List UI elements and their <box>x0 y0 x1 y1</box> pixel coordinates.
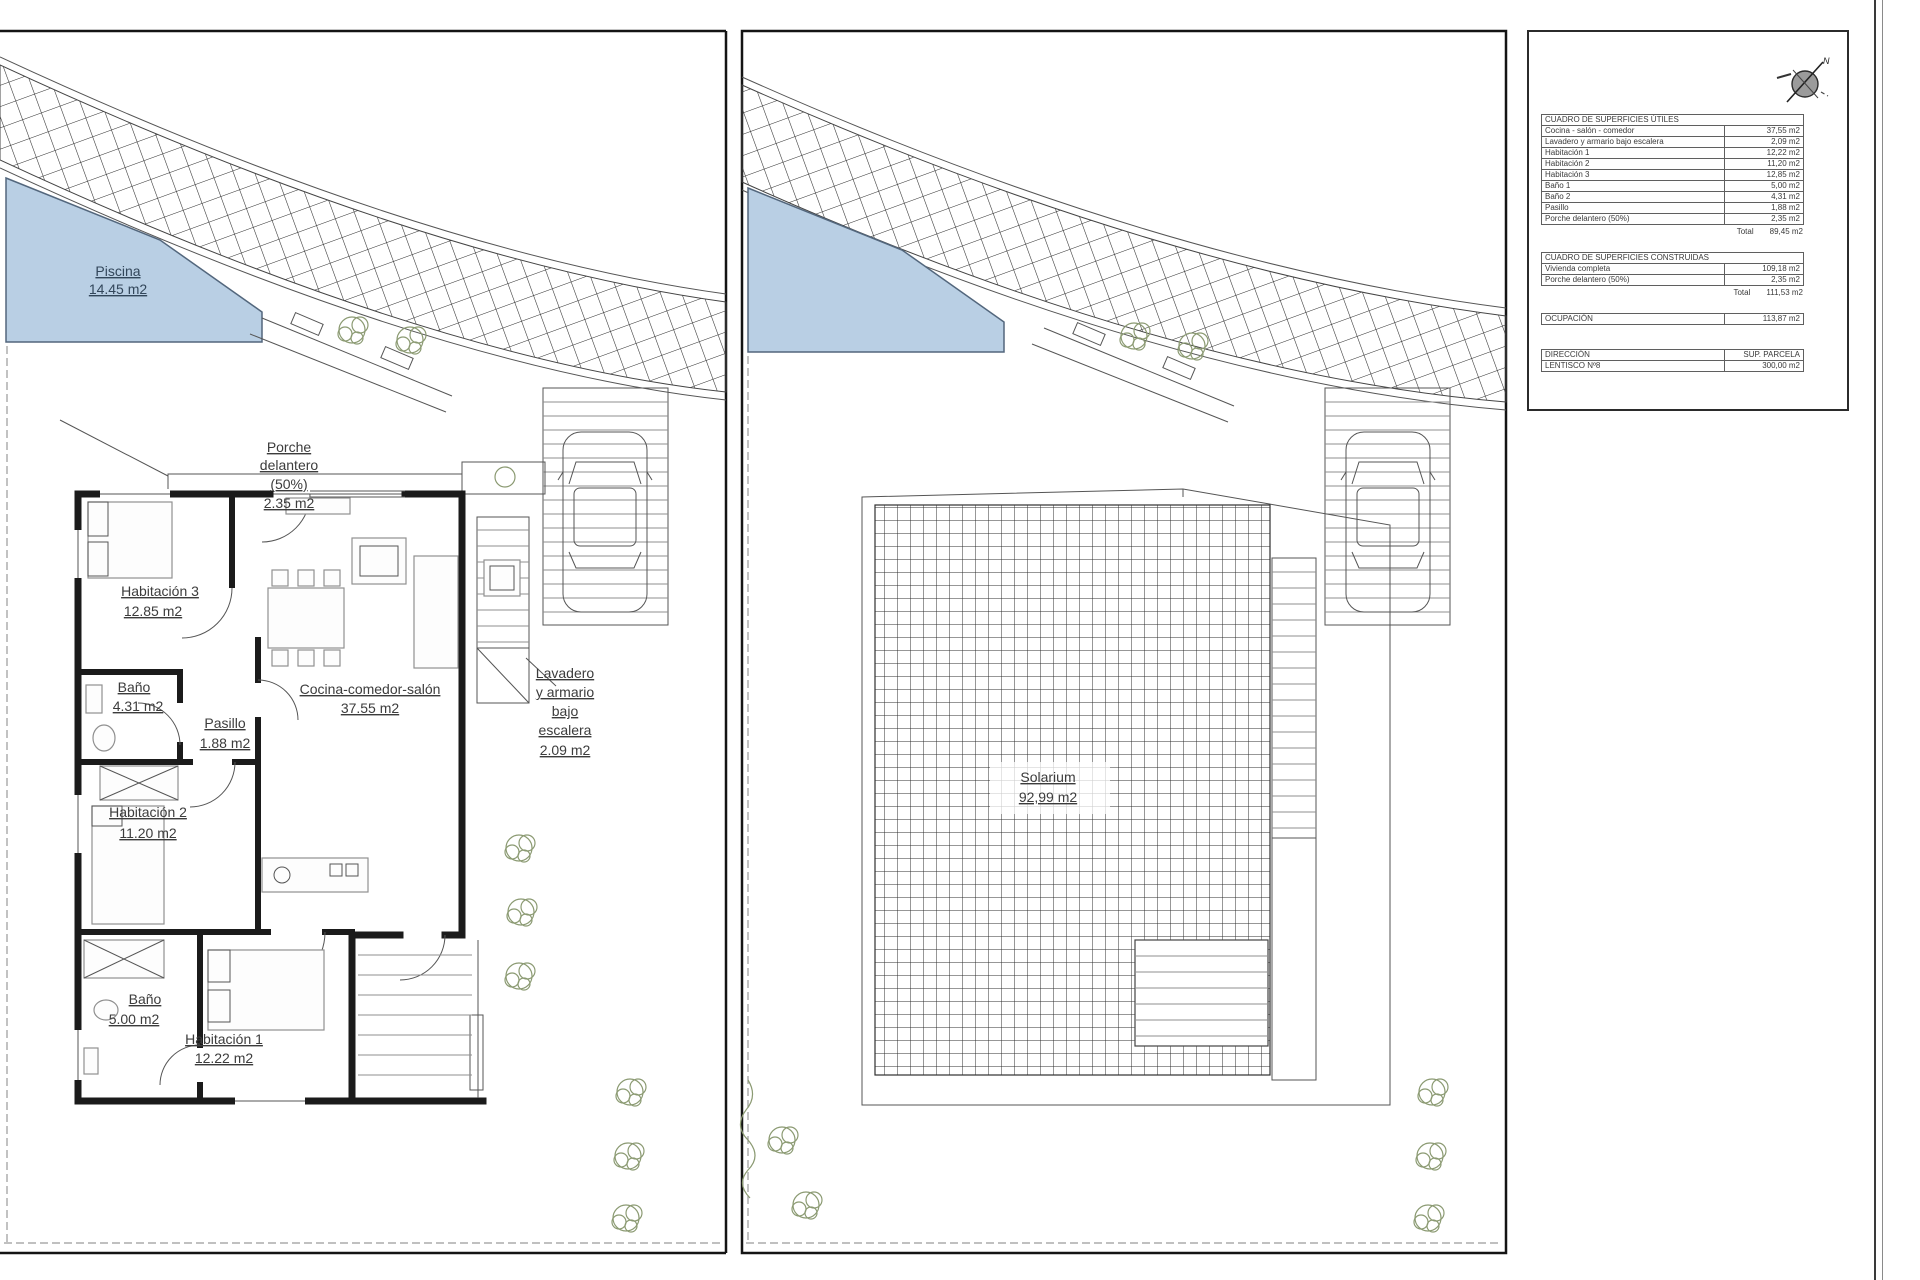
table-title: CUADRO DE SUPERFICIES CONSTRUIDAS <box>1542 253 1804 264</box>
pasillo-area: 1.88 m2 <box>200 735 251 751</box>
row-label: Habitación 2 <box>1542 159 1725 170</box>
pool-label: Piscina <box>95 263 140 279</box>
porch-label-2: delantero <box>260 457 319 473</box>
deck-steps <box>358 940 483 1098</box>
car-icon <box>1341 432 1435 612</box>
parcel-surface-header: SUP. PARCELA <box>1725 350 1804 361</box>
cocina-area: 37.55 m2 <box>341 700 400 716</box>
lavadero-label-4: escalera <box>539 722 592 738</box>
total-value: 111,53 m2 <box>1766 288 1803 297</box>
garden-plants <box>338 317 646 1232</box>
total-label: Total <box>1737 227 1754 236</box>
parking-area <box>1325 388 1450 625</box>
row-label: Baño 2 <box>1542 192 1725 203</box>
row-label: Pasillo <box>1542 203 1725 214</box>
compass-north-label: N <box>1823 56 1830 66</box>
lavadero-label-3: bajo <box>552 703 579 719</box>
row-label: Porche delantero (50%) <box>1542 214 1725 225</box>
row-label: Habitación 3 <box>1542 170 1725 181</box>
row-value: 2,09 m2 <box>1725 137 1804 148</box>
pool-area: 14.45 m2 <box>89 281 148 297</box>
ground-floor-plan-panel: Piscina 14.45 m2 <box>0 29 728 1255</box>
bano2-area: 4.31 m2 <box>113 698 164 714</box>
total-value: 89,45 m2 <box>1770 227 1803 236</box>
address-header: DIRECCIÓN <box>1542 350 1725 361</box>
lavadero-label-2: y armario <box>536 684 595 700</box>
sheet-edge-line <box>1874 0 1883 1280</box>
row-value: 2,35 m2 <box>1725 214 1804 225</box>
solarium-label: Solarium <box>1020 769 1075 785</box>
hab1-area: 12.22 m2 <box>195 1050 254 1066</box>
hab2-label: Habitación 2 <box>109 804 187 820</box>
built-surfaces-total: Total 111,53 m2 <box>1541 286 1807 297</box>
row-label: Lavadero y armario bajo escalera <box>1542 137 1725 148</box>
row-label: Cocina - salón - comedor <box>1542 126 1725 137</box>
occupation-label: OCUPACIÓN <box>1542 314 1725 325</box>
porch-area: 2.35 m2 <box>264 495 315 511</box>
useful-surfaces-table: CUADRO DE SUPERFICIES ÚTILES Cocina - sa… <box>1541 114 1804 225</box>
row-value: 12,85 m2 <box>1725 170 1804 181</box>
bano1-label: Baño <box>129 991 162 1007</box>
address-value: LENTISCO Nº8 <box>1542 361 1725 372</box>
parcel-surface-value: 300,00 m2 <box>1725 361 1804 372</box>
row-label: Habitación 1 <box>1542 148 1725 159</box>
hab3-area: 12.85 m2 <box>124 603 183 619</box>
solarium-terrace: Solarium 92,99 m2 <box>875 505 1316 1080</box>
row-value: 5,00 m2 <box>1725 181 1804 192</box>
row-label: Baño 1 <box>1542 181 1725 192</box>
porch-label-3: (50%) <box>270 476 307 492</box>
roof-plan-panel: Solarium 92,99 m2 <box>739 29 1509 1255</box>
north-compass-icon: N <box>1771 52 1835 112</box>
parcel-table: DIRECCIÓNSUP. PARCELA LENTISCO Nº8300,00… <box>1541 349 1804 372</box>
occupation-table: OCUPACIÓN113,87 m2 <box>1541 313 1804 325</box>
row-label: Vivienda completa <box>1542 264 1725 275</box>
summary-panel: N CUADRO DE SUPERFICIES ÚTILES Cocina - … <box>1527 30 1849 411</box>
bano2-label: Baño <box>118 679 151 695</box>
plan-sheet: { "left_plan": { "pool": {"name": "Pisci… <box>0 0 1920 1280</box>
row-value: 109,18 m2 <box>1725 264 1804 275</box>
row-value: 1,88 m2 <box>1725 203 1804 214</box>
built-surfaces-table: CUADRO DE SUPERFICIES CONSTRUIDAS Vivien… <box>1541 252 1804 286</box>
row-value: 4,31 m2 <box>1725 192 1804 203</box>
useful-surfaces-total: Total 89,45 m2 <box>1541 225 1807 236</box>
occupation-value: 113,87 m2 <box>1725 314 1804 325</box>
porch-label-1: Porche <box>267 439 312 455</box>
row-value: 11,20 m2 <box>1725 159 1804 170</box>
row-value: 12,22 m2 <box>1725 148 1804 159</box>
hab3-label: Habitación 3 <box>121 583 199 599</box>
row-label: Porche delantero (50%) <box>1542 275 1725 286</box>
solarium-area: 92,99 m2 <box>1019 789 1078 805</box>
parking-area <box>543 388 668 625</box>
row-value: 37,55 m2 <box>1725 126 1804 137</box>
lavadero-area: 2.09 m2 <box>540 742 591 758</box>
bano1-area: 5.00 m2 <box>109 1011 160 1027</box>
car-icon <box>558 432 652 612</box>
hab1-label: Habitación 1 <box>185 1031 263 1047</box>
total-label: Total <box>1733 288 1750 297</box>
table-title: CUADRO DE SUPERFICIES ÚTILES <box>1542 115 1804 126</box>
hab2-area: 11.20 m2 <box>119 825 177 841</box>
lavadero-label-1: Lavadero <box>536 665 595 681</box>
solarium-label-group: Solarium 92,99 m2 <box>990 762 1110 814</box>
cocina-label: Cocina-comedor-salón <box>300 681 441 697</box>
row-value: 2,35 m2 <box>1725 275 1804 286</box>
pasillo-label: Pasillo <box>204 715 245 731</box>
